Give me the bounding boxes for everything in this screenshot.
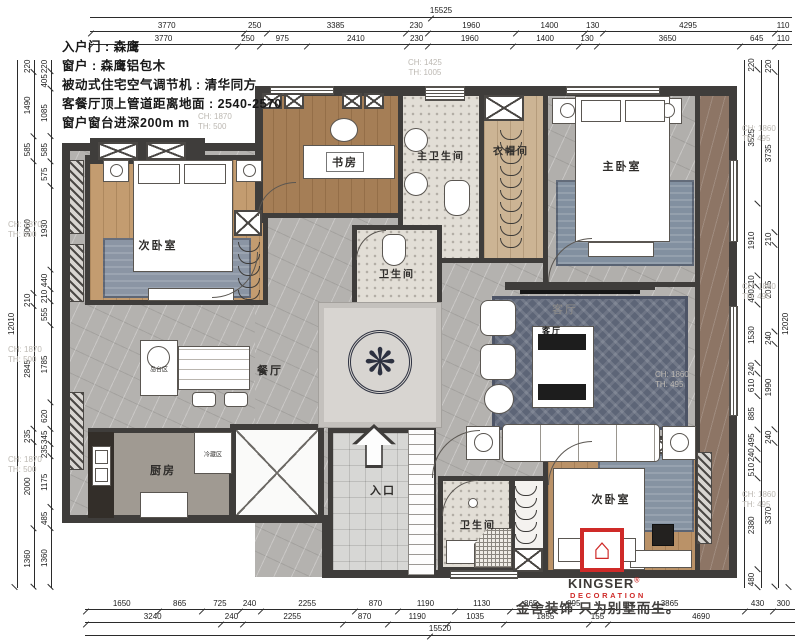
dimension-value: 405 bbox=[37, 72, 52, 90]
dimension-value: 555 bbox=[37, 302, 52, 326]
wall bbox=[62, 143, 70, 522]
dimension-value: 130 bbox=[584, 21, 602, 32]
dimension-value: 12010 bbox=[7, 60, 16, 588]
dimension-value: 495 bbox=[744, 431, 759, 450]
room-label-second-bedroom-bottom: 次卧室 bbox=[592, 491, 631, 507]
hanger-arc bbox=[500, 130, 522, 140]
dimension-value: 1035 bbox=[447, 612, 502, 623]
ch-value: CH: 1860 bbox=[742, 490, 776, 499]
dimension-value: 240 bbox=[220, 612, 242, 623]
ch-th-annotation: CH: 1860 TH: 495 bbox=[742, 490, 776, 511]
dimension-value: 130 bbox=[578, 34, 596, 45]
dimension-value: 210 bbox=[37, 290, 52, 302]
hanger-arc bbox=[500, 178, 522, 188]
dimension-value: 1960 bbox=[427, 21, 515, 32]
dimension-value: 240 bbox=[239, 599, 260, 610]
brand-name: KINGSER® bbox=[568, 576, 640, 591]
zone-label-fridge: 冷藏区 bbox=[204, 450, 222, 459]
sink-basin bbox=[95, 468, 108, 482]
dimension-value: 300 bbox=[772, 599, 795, 610]
dimension-value: 1910 bbox=[744, 204, 759, 276]
th-value: TH: 495 bbox=[655, 380, 683, 389]
dim-left-outer: 22014905853060210284523520001360 bbox=[20, 60, 35, 588]
dimension-value: 2255 bbox=[242, 612, 342, 623]
note-line: 客餐厅顶上管道距离地面 : 2540-2570 bbox=[62, 95, 362, 114]
drain bbox=[468, 498, 478, 508]
dimension-value: 610 bbox=[744, 374, 759, 397]
hanger-arc bbox=[515, 510, 537, 520]
medallion-glyph: ❋ bbox=[364, 340, 396, 385]
th-value: TH: 495 bbox=[742, 292, 770, 301]
dimension-value: 220 bbox=[20, 60, 35, 73]
dimension-value: 1085 bbox=[37, 90, 52, 137]
dimension-value: 585 bbox=[20, 137, 35, 162]
dimension-value: 12020 bbox=[781, 60, 790, 588]
bed-bench bbox=[588, 242, 654, 257]
dimension-value: 220 bbox=[744, 60, 759, 71]
toilet bbox=[444, 180, 470, 216]
dimension-value: 575 bbox=[37, 162, 52, 187]
ch-value: CH: 1870 bbox=[8, 455, 42, 464]
kitchen-island bbox=[140, 492, 188, 518]
window bbox=[566, 86, 660, 95]
dimension-value: 645 bbox=[739, 34, 774, 45]
dimension-value: 870 bbox=[342, 612, 387, 623]
wardrobe-hangers bbox=[513, 484, 539, 546]
dimension-value: 865 bbox=[158, 599, 201, 610]
hanger-arc bbox=[500, 226, 522, 236]
dim-right-total: 12020 bbox=[778, 60, 792, 588]
brand-logo-mark: ⌂ bbox=[580, 528, 624, 572]
dimension-value: 210 bbox=[20, 294, 35, 307]
nightstand-lamp bbox=[110, 164, 123, 177]
dimension-value: 1360 bbox=[20, 529, 35, 588]
dim-bottom-total: 15520 bbox=[85, 623, 795, 636]
dimension-value: 220 bbox=[37, 60, 52, 72]
dim-left-total: 12010 bbox=[4, 60, 18, 588]
coffee-table-tray bbox=[538, 384, 586, 400]
room-label-study: 书房 bbox=[326, 152, 364, 172]
dim-bottom-row1: 1650865725240225587011901130865895386543… bbox=[85, 597, 795, 610]
dimension-value: 3240 bbox=[85, 612, 220, 623]
dimension-value: 110 bbox=[774, 21, 792, 32]
dim-bottom-row2: 324024022558701190103518551554690 bbox=[85, 610, 795, 623]
room-label-kitchen: 厨房 bbox=[150, 462, 176, 478]
dimension-value: 240 bbox=[744, 364, 759, 375]
room-label-cloakroom: 衣帽间 bbox=[493, 143, 529, 158]
stairs bbox=[408, 430, 434, 575]
dimension-value: 585 bbox=[37, 137, 52, 162]
ch-th-annotation: CH: 1860 TH: 495 bbox=[655, 370, 689, 391]
medallion-ornament: ❋ bbox=[348, 330, 412, 394]
hanger-arc bbox=[238, 242, 260, 252]
house-icon: ⌂ bbox=[593, 533, 611, 567]
ch-value: CH: 1860 bbox=[655, 370, 689, 379]
th-value: TH: 1005 bbox=[408, 68, 441, 77]
dining-table bbox=[178, 346, 250, 390]
elevator-shaft bbox=[230, 424, 324, 522]
dimension-value: 220 bbox=[761, 60, 776, 73]
dimension-value: 3770 bbox=[90, 21, 243, 32]
dimension-value: 240 bbox=[761, 332, 776, 345]
nightstand bbox=[652, 524, 674, 546]
dimension-value: 2255 bbox=[260, 599, 354, 610]
hanger-arc bbox=[515, 486, 537, 496]
window-xbox bbox=[364, 93, 384, 109]
dimension-value: 240 bbox=[761, 431, 776, 444]
dim-left-inner: 2204051085585575193044021055517856203452… bbox=[37, 60, 52, 588]
ch-th-annotation: CH: 1425 TH: 1005 bbox=[408, 58, 442, 79]
ch-value: CH: 1860 bbox=[742, 282, 776, 291]
dimension-value: 4295 bbox=[602, 21, 774, 32]
ch-value: CH: 1870 bbox=[8, 220, 42, 229]
dimension-value: 430 bbox=[744, 599, 772, 610]
side-table-round bbox=[484, 384, 514, 414]
dimension-value: 485 bbox=[37, 508, 52, 529]
room-label-living: 客厅 bbox=[552, 301, 578, 317]
pillow bbox=[581, 100, 621, 122]
sink bbox=[404, 172, 428, 196]
dimension-value: 480 bbox=[744, 570, 759, 588]
window-xbox bbox=[98, 142, 138, 160]
dimension-value: 1530 bbox=[744, 306, 759, 364]
dimension-value: 1650 bbox=[85, 599, 158, 610]
hanger-arc bbox=[515, 498, 537, 508]
tv-cabinet bbox=[630, 550, 692, 568]
hanger-arc bbox=[500, 166, 522, 176]
hanger-arc bbox=[500, 214, 522, 224]
dimension-value: 210 bbox=[761, 233, 776, 246]
tv-wall bbox=[505, 282, 655, 290]
hanger-arc bbox=[515, 534, 537, 544]
ch-th-annotation: CH: 1870 TH: 500 bbox=[8, 345, 42, 366]
window bbox=[425, 86, 465, 101]
note-line: 被动式住宅空气调节机 : 清华同方 bbox=[62, 76, 362, 95]
ch-value: CH: 1860 bbox=[742, 124, 776, 133]
plan-notes: 入户门 : 森鹰窗户 : 森鹰铝包木被动式住宅空气调节机 : 清华同方客餐厅顶上… bbox=[62, 38, 362, 133]
th-value: TH: 500 bbox=[8, 465, 36, 474]
dimension-value: 1190 bbox=[387, 612, 447, 623]
dimension-value: 1990 bbox=[761, 345, 776, 430]
dimension-value: 440 bbox=[37, 271, 52, 290]
brand-text: KINGSER bbox=[568, 576, 634, 591]
dimension-value: 15525 bbox=[430, 6, 452, 17]
zone-label-island: 岛台区 bbox=[150, 365, 168, 374]
hanger-arc bbox=[500, 202, 522, 212]
note-line: 入户门 : 森鹰 bbox=[62, 38, 362, 57]
dimension-value: 240 bbox=[744, 450, 759, 461]
dimension-value: 15520 bbox=[429, 624, 451, 635]
armchair bbox=[480, 344, 516, 380]
dimension-value: 885 bbox=[744, 397, 759, 431]
window bbox=[729, 306, 738, 416]
hanger-arc bbox=[500, 190, 522, 200]
nightstand-lamp bbox=[243, 164, 256, 177]
th-value: TH: 495 bbox=[742, 500, 770, 509]
dining-stool bbox=[192, 392, 216, 407]
sink-basin bbox=[95, 450, 108, 464]
dimension-value: 1400 bbox=[515, 21, 583, 32]
room-label-bathroom-bottom: 卫生间 bbox=[460, 517, 496, 532]
pillow bbox=[138, 164, 180, 184]
balcony-window-hatch bbox=[697, 452, 712, 544]
dimension-value: 1130 bbox=[454, 599, 509, 610]
room-label-entrance: 入口 bbox=[370, 482, 396, 498]
dimension-value: 235 bbox=[20, 430, 35, 443]
room-label-dining: 餐厅 bbox=[257, 362, 283, 378]
dimension-value: 250 bbox=[243, 21, 265, 32]
room-label-master-bathroom: 主卫生间 bbox=[417, 148, 465, 163]
dimension-value: 345 bbox=[37, 430, 52, 445]
dimension-value: 620 bbox=[37, 403, 52, 430]
dimension-value: 3735 bbox=[761, 73, 776, 233]
pillow bbox=[184, 164, 226, 184]
ch-th-annotation: CH: 1870 TH: 500 bbox=[8, 220, 42, 241]
hanger-arc bbox=[500, 238, 522, 248]
nightstand-lamp bbox=[560, 103, 575, 118]
room-label-bathroom-mid: 卫生间 bbox=[379, 266, 415, 281]
wall bbox=[322, 515, 330, 577]
dimension-value: 230 bbox=[405, 21, 427, 32]
dimension-value: 230 bbox=[406, 34, 427, 45]
window-xbox bbox=[484, 95, 524, 121]
dimension-value: 110 bbox=[774, 34, 792, 45]
registered-mark: ® bbox=[634, 578, 640, 585]
dimension-value: 1400 bbox=[512, 34, 578, 45]
floor-plan-page: 入户门 : 森鹰窗户 : 森鹰铝包木被动式住宅空气调节机 : 清华同方客餐厅顶上… bbox=[0, 0, 800, 641]
room-label-second-bedroom-top: 次卧室 bbox=[139, 237, 178, 253]
dimension-value: 1490 bbox=[20, 73, 35, 137]
note-line: 窗户窗台进深200m m bbox=[62, 114, 362, 133]
ch-th-annotation: CH: 1860 TH: 495 bbox=[742, 282, 776, 303]
window-xbox bbox=[146, 142, 186, 160]
watermark-slogan: 金舍装饰 只为别墅而生。 bbox=[516, 597, 680, 617]
dim-top-total: 15525 bbox=[90, 5, 792, 18]
note-line: 窗户 : 森鹰铝包木 bbox=[62, 57, 362, 76]
pillow bbox=[625, 100, 665, 122]
dimension-value: 3650 bbox=[596, 34, 739, 45]
hanger-arc bbox=[515, 522, 537, 532]
ch-th-annotation: CH: 1860 TH: 495 bbox=[742, 124, 776, 145]
dimension-value: 1360 bbox=[37, 529, 52, 588]
dimension-value: 2845 bbox=[20, 307, 35, 430]
room-label-living-small: 客厅 bbox=[542, 326, 562, 337]
tv bbox=[520, 290, 640, 294]
sofa-side-lamp bbox=[670, 433, 689, 452]
ch-th-annotation: CH: 1870 TH: 500 bbox=[8, 455, 42, 476]
dimension-value: 3385 bbox=[266, 21, 406, 32]
sofa-side-lamp bbox=[474, 433, 493, 452]
dining-stool bbox=[224, 392, 248, 407]
window bbox=[729, 160, 738, 242]
dimension-value: 1190 bbox=[397, 599, 454, 610]
dimension-value: 870 bbox=[354, 599, 397, 610]
ch-value: CH: 1870 bbox=[8, 345, 42, 354]
dimension-value: 510 bbox=[744, 460, 759, 479]
armchair bbox=[480, 300, 516, 336]
dim-top-row1: 37702503385230196014001304295110 bbox=[90, 19, 792, 32]
dimension-value: 1960 bbox=[427, 34, 512, 45]
th-value: TH: 495 bbox=[742, 134, 770, 143]
th-value: TH: 500 bbox=[8, 355, 36, 364]
dimension-value: 3370 bbox=[761, 443, 776, 588]
wardrobe-xbox bbox=[513, 548, 543, 572]
ch-value: CH: 1425 bbox=[408, 58, 442, 67]
window bbox=[450, 570, 518, 579]
th-value: TH: 500 bbox=[8, 230, 36, 239]
dimension-value: 725 bbox=[201, 599, 239, 610]
room-label-master-bedroom: 主卧室 bbox=[603, 158, 642, 174]
